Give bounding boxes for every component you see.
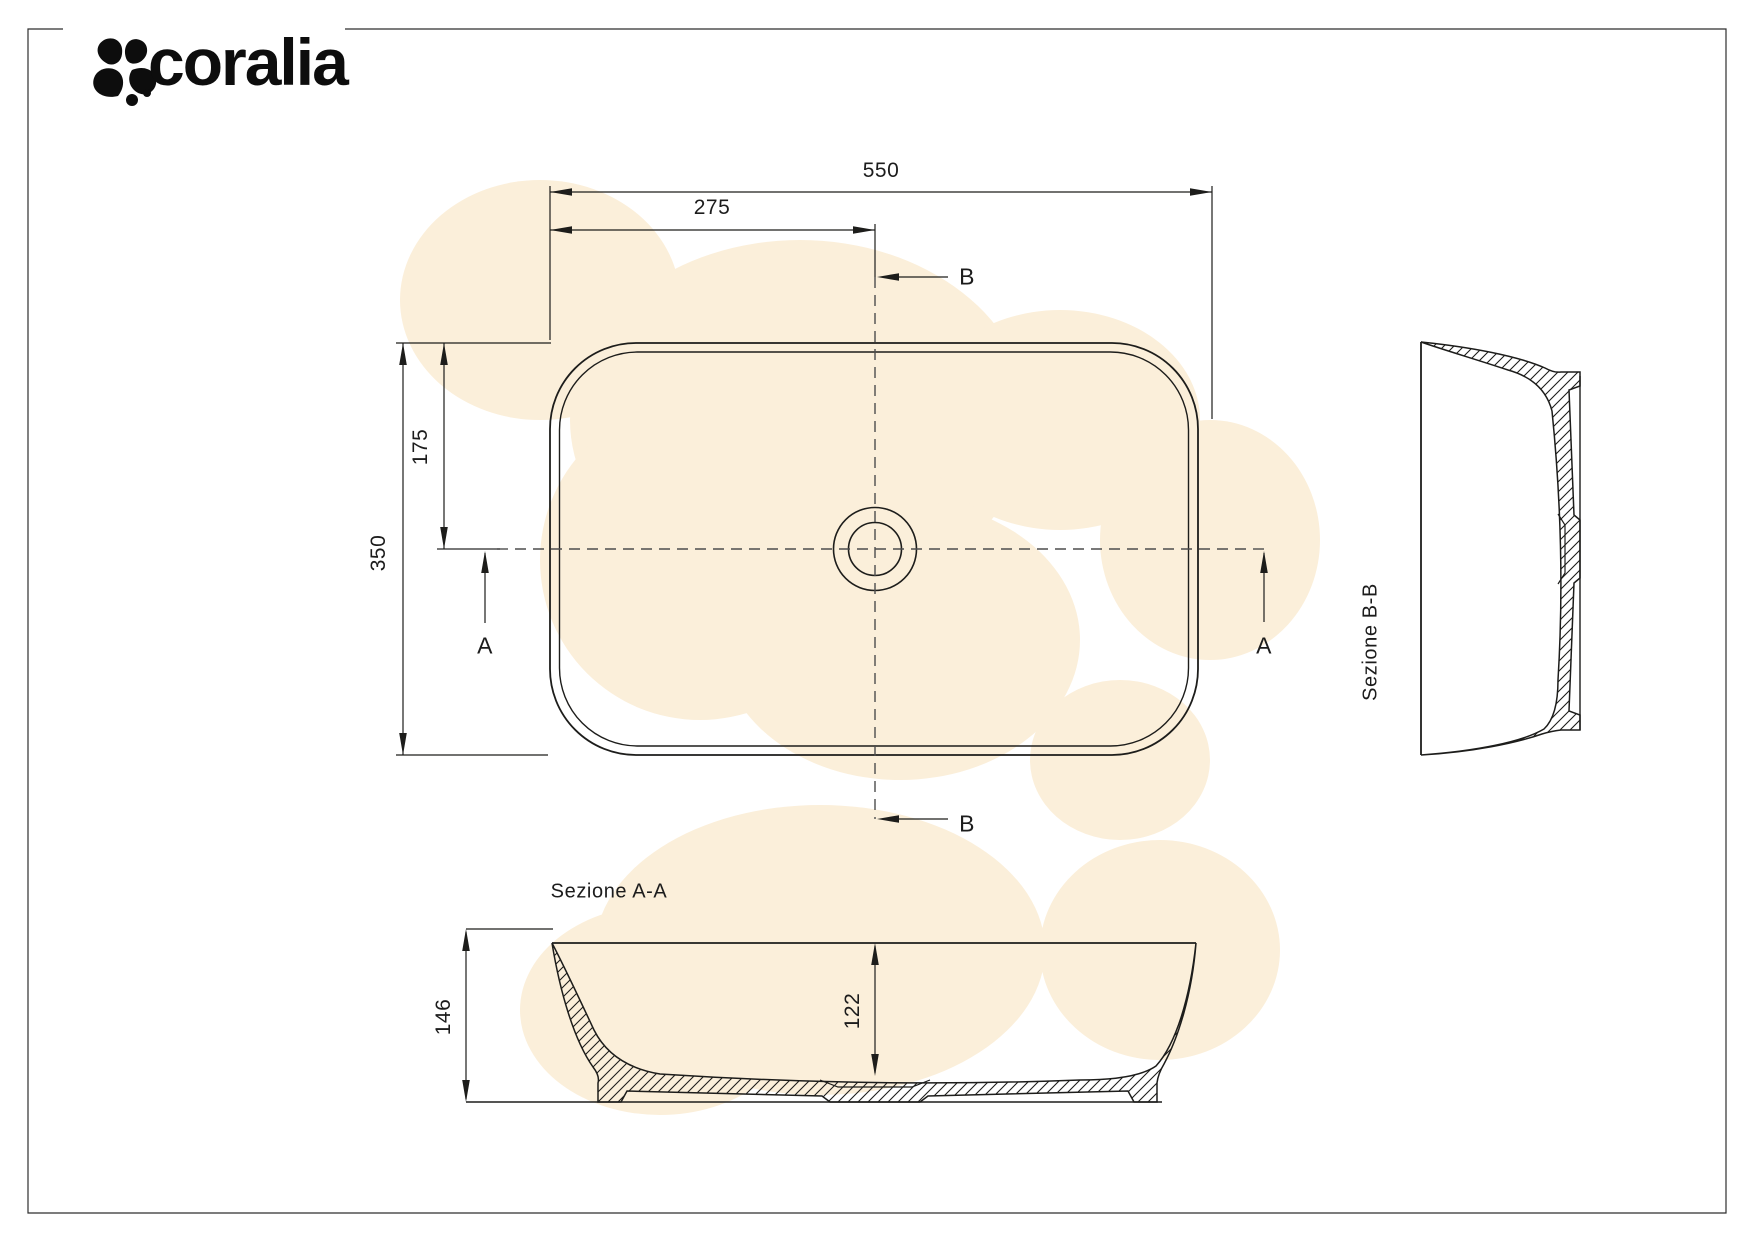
- background-blob: [400, 180, 1320, 1115]
- section-marker-b-top: B: [959, 264, 975, 291]
- drawing-canvas: [0, 0, 1754, 1241]
- dim-label-275: 275: [694, 196, 731, 220]
- dim-label-550: 550: [863, 159, 900, 183]
- dim-label-122: 122: [841, 993, 865, 1030]
- section-bb-title: Sezione B-B: [1360, 583, 1383, 701]
- dim-label-146: 146: [432, 999, 456, 1036]
- section-bb-view: [1421, 342, 1580, 755]
- section-aa-title: Sezione A-A: [551, 881, 668, 904]
- dim-label-350: 350: [367, 535, 391, 572]
- section-bb-wall: [1421, 342, 1580, 755]
- brand-logo-text: coralia: [148, 30, 347, 94]
- section-marker-a-right: A: [1256, 633, 1272, 660]
- coralia-logo-icon: [93, 38, 156, 106]
- spec-sheet: coralia 550 275 350 175 B B A A Sezione …: [0, 0, 1754, 1241]
- section-marker-b-bottom: B: [959, 811, 975, 838]
- dim-label-175: 175: [409, 429, 433, 466]
- section-marker-a-left: A: [477, 633, 493, 660]
